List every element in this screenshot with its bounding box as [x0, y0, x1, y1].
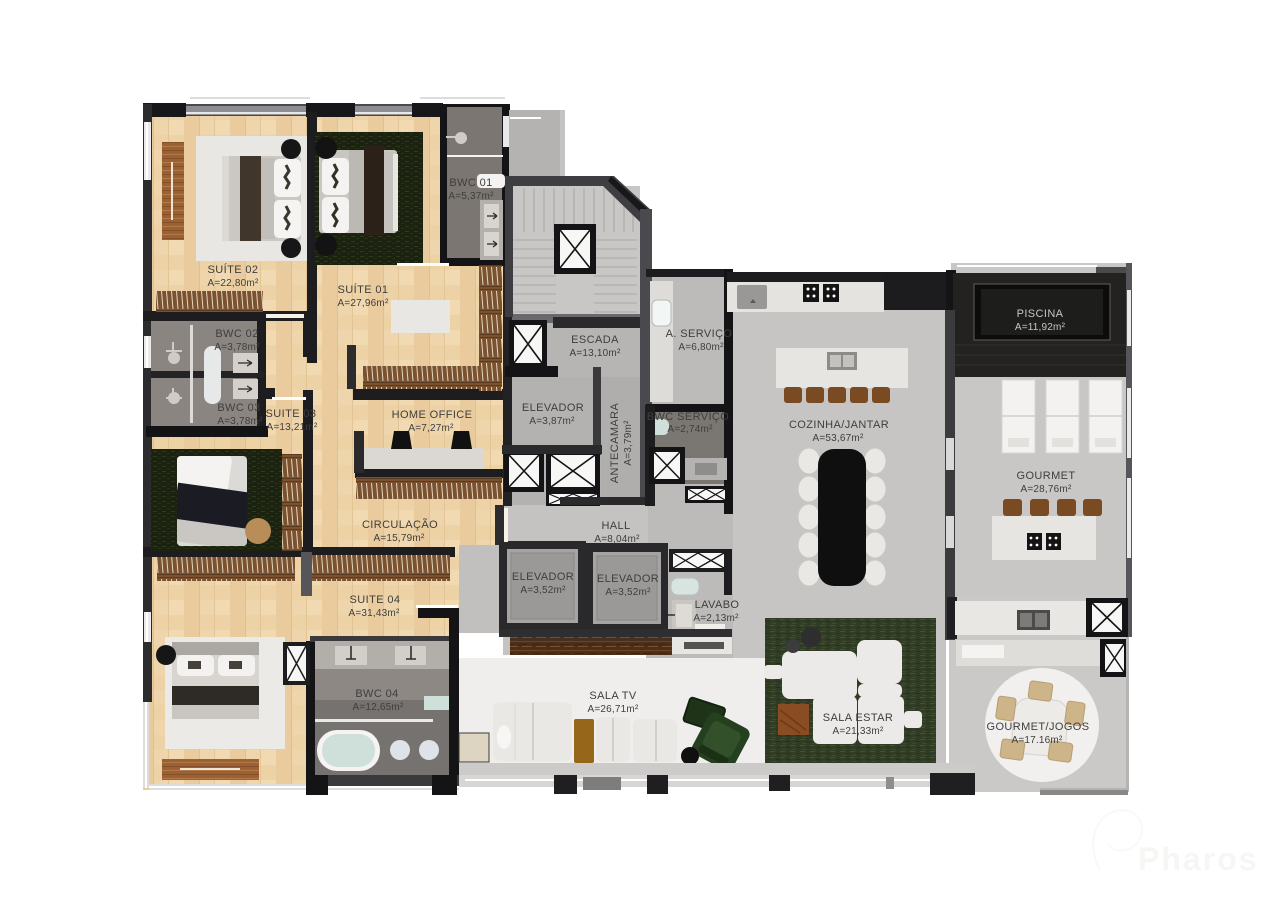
svg-text:LAVABO: LAVABO: [695, 599, 740, 611]
svg-text:GOURMET/JOGOS: GOURMET/JOGOS: [987, 721, 1090, 733]
svg-text:SUITE 03: SUITE 03: [266, 408, 317, 420]
svg-text:A=22,80m²: A=22,80m²: [208, 278, 259, 289]
svg-text:A=7,27m²: A=7,27m²: [408, 423, 454, 434]
svg-text:A=6,80m²: A=6,80m²: [678, 342, 724, 353]
svg-text:BWC 02: BWC 02: [215, 328, 258, 340]
svg-text:A=26,71m²: A=26,71m²: [588, 704, 639, 715]
svg-text:A=2,74m²: A=2,74m²: [667, 424, 713, 435]
svg-text:ELEVADOR: ELEVADOR: [522, 402, 584, 414]
svg-text:ELEVADOR: ELEVADOR: [512, 571, 574, 583]
svg-text:HALL: HALL: [601, 520, 630, 532]
svg-text:A=3,78m²: A=3,78m²: [214, 342, 260, 353]
svg-text:A=28,76m²: A=28,76m²: [1021, 484, 1072, 495]
svg-text:A=3,78m²: A=3,78m²: [217, 416, 263, 427]
svg-text:A=12,65m²: A=12,65m²: [353, 702, 404, 713]
svg-text:ANTECAMARA: ANTECAMARA: [609, 403, 621, 484]
svg-text:BWC 03: BWC 03: [217, 402, 260, 414]
svg-text:SALA ESTAR: SALA ESTAR: [823, 712, 893, 724]
svg-text:SALA TV: SALA TV: [589, 690, 636, 702]
svg-text:SUITE 04: SUITE 04: [350, 594, 401, 606]
svg-text:A=5,37m²: A=5,37m²: [448, 191, 494, 202]
svg-text:BWC SERVIÇO: BWC SERVIÇO: [647, 411, 729, 423]
svg-text:SUÍTE 01: SUÍTE 01: [338, 283, 389, 296]
svg-text:A=17.16m²: A=17.16m²: [1012, 735, 1063, 746]
svg-text:A=53,67m²: A=53,67m²: [813, 433, 864, 444]
svg-text:Pharos: Pharos: [1138, 841, 1258, 877]
svg-text:A=3,52m²: A=3,52m²: [605, 587, 651, 598]
svg-text:A=21,33m²: A=21,33m²: [833, 726, 884, 737]
svg-text:A=3,79m²: A=3,79m²: [623, 420, 634, 466]
svg-text:COZINHA/JANTAR: COZINHA/JANTAR: [789, 419, 889, 431]
svg-text:A=31,43m²: A=31,43m²: [349, 608, 400, 619]
svg-text:PISCINA: PISCINA: [1017, 308, 1064, 320]
svg-text:A=8,04m²: A=8,04m²: [594, 534, 640, 545]
svg-text:A=3,87m²: A=3,87m²: [529, 416, 575, 427]
svg-text:A=3,52m²: A=3,52m²: [520, 585, 566, 596]
svg-text:A=13,10m²: A=13,10m²: [570, 348, 621, 359]
svg-text:ELEVADOR: ELEVADOR: [597, 573, 659, 585]
svg-text:BWC 04: BWC 04: [355, 688, 398, 700]
svg-text:ESCADA: ESCADA: [571, 334, 619, 346]
svg-text:A=2,13m²: A=2,13m²: [693, 613, 739, 624]
svg-text:A. SERVIÇO: A. SERVIÇO: [666, 328, 733, 340]
svg-text:A=11,92m²: A=11,92m²: [1015, 322, 1066, 333]
svg-text:SUÍTE 02: SUÍTE 02: [208, 263, 259, 276]
svg-text:GOURMET: GOURMET: [1016, 470, 1075, 482]
svg-text:A=27,96m²: A=27,96m²: [338, 298, 389, 309]
svg-text:A=15,79m²: A=15,79m²: [374, 533, 425, 544]
svg-text:A=13,21m²: A=13,21m²: [267, 422, 318, 433]
svg-text:BWC 01: BWC 01: [449, 177, 492, 189]
svg-text:HOME OFFICE: HOME OFFICE: [392, 409, 473, 421]
svg-text:CIRCULAÇÃO: CIRCULAÇÃO: [362, 518, 438, 531]
